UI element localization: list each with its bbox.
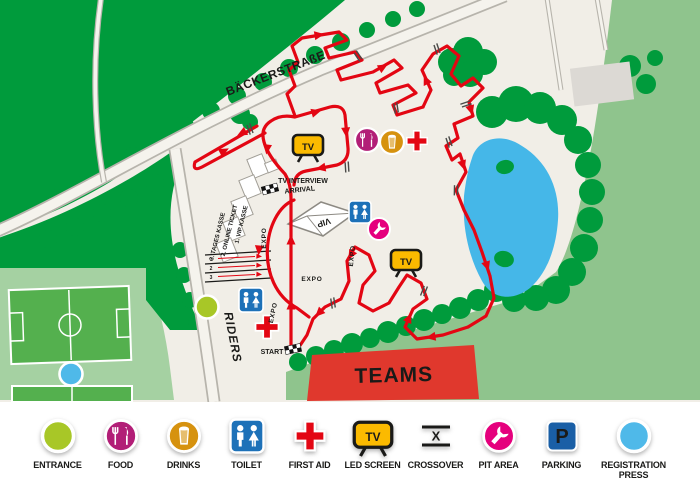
course-map-svg: TV	[0, 0, 700, 402]
svg-text:X: X	[431, 429, 440, 444]
soccer-pitch	[9, 286, 132, 364]
legend-label: REGISTRATION PRESS	[597, 460, 671, 481]
legend-label: LED SCREEN	[345, 460, 401, 470]
food-icon	[355, 128, 379, 152]
legend-label: FIRST AID	[289, 460, 331, 470]
tv-interview-label: TV INTERVIEW	[278, 178, 328, 185]
course-map: TV	[0, 0, 700, 402]
drinks-icon	[162, 414, 206, 458]
toilet-icon	[349, 201, 371, 223]
legend-item-led-screen: LED SCREEN	[345, 414, 401, 470]
legend-label: ENTRANCE	[33, 460, 81, 470]
legend-item-crossover: X CROSSOVER	[408, 414, 464, 470]
legend-label: PARKING	[542, 460, 581, 470]
entrance-icon	[36, 414, 80, 458]
legend-item-entrance: ENTRANCE	[30, 414, 86, 470]
legend-label: DRINKS	[167, 460, 200, 470]
crossover-icon: X	[414, 414, 458, 458]
legend-item-food: FOOD	[93, 414, 149, 470]
legend-item-first-aid: FIRST AID	[282, 414, 338, 470]
legend-label: FOOD	[108, 460, 133, 470]
toilet-icon	[239, 288, 263, 312]
teams-label: TEAMS	[354, 363, 433, 388]
legend-item-toilet: TOILET	[219, 414, 275, 470]
legend-item-registration-press: REGISTRATION PRESS	[597, 414, 671, 481]
legend-label: PIT AREA	[478, 460, 518, 470]
registration-press-icon	[612, 414, 656, 458]
start-label: START	[261, 349, 285, 356]
pit-area-icon	[477, 414, 521, 458]
legend-item-pit-area: PIT AREA	[471, 414, 527, 470]
svg-text:2: 2	[210, 266, 213, 272]
first-aid-icon	[288, 414, 332, 458]
soccer-pitch-2	[12, 386, 132, 402]
led-screen-icon	[351, 414, 395, 458]
svg-text:3: 3	[210, 275, 213, 281]
building	[570, 61, 634, 106]
legend-item-drinks: DRINKS	[156, 414, 212, 470]
svg-text:P: P	[555, 426, 568, 448]
legend-label: TOILET	[231, 460, 262, 470]
registration-press-icon	[60, 363, 83, 386]
expo-label: EXPO	[301, 276, 322, 283]
food-icon	[99, 414, 143, 458]
entrance-icon	[196, 296, 219, 319]
pit-area-icon	[368, 218, 390, 240]
toilet-icon	[225, 414, 269, 458]
legend-item-parking: P PARKING	[534, 414, 590, 470]
legend-label: CROSSOVER	[408, 460, 464, 470]
expo-label: EXPO	[261, 227, 268, 248]
event-map-page: TV	[0, 0, 700, 495]
drinks-icon	[380, 130, 404, 154]
parking-icon: P	[540, 414, 584, 458]
legend: ENTRANCE FOOD DRINKS TOILET FIRST AID	[0, 402, 700, 495]
